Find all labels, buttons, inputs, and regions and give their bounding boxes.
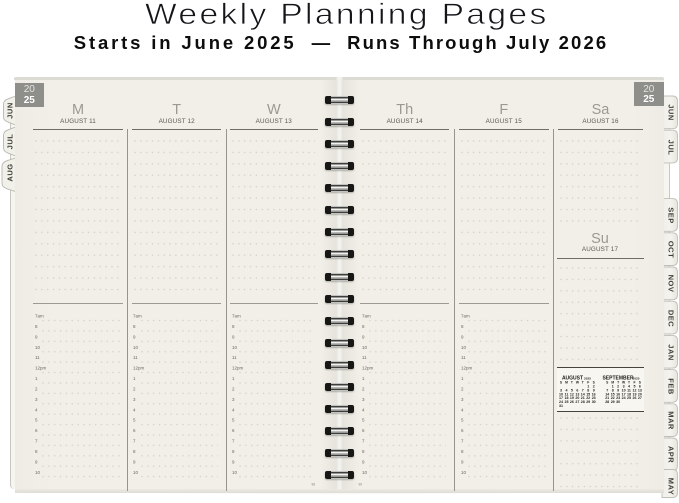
svg-text:30: 30 [592, 400, 596, 404]
svg-text:27: 27 [638, 396, 642, 400]
svg-text:25: 25 [627, 396, 631, 400]
svg-text:28: 28 [605, 400, 609, 404]
svg-text:31: 31 [559, 404, 563, 408]
svg-text:T: T [571, 380, 573, 384]
svg-text:30: 30 [616, 400, 620, 404]
svg-text:26: 26 [570, 400, 574, 404]
svg-text:27: 27 [575, 400, 579, 404]
svg-text:M: M [565, 380, 568, 384]
svg-text:29: 29 [586, 400, 590, 404]
svg-text:T: T [582, 380, 584, 384]
svg-text:29: 29 [611, 400, 615, 404]
svg-text:28: 28 [581, 400, 585, 404]
svg-text:26: 26 [633, 396, 637, 400]
svg-text:25: 25 [565, 400, 569, 404]
svg-text:24: 24 [622, 396, 626, 400]
